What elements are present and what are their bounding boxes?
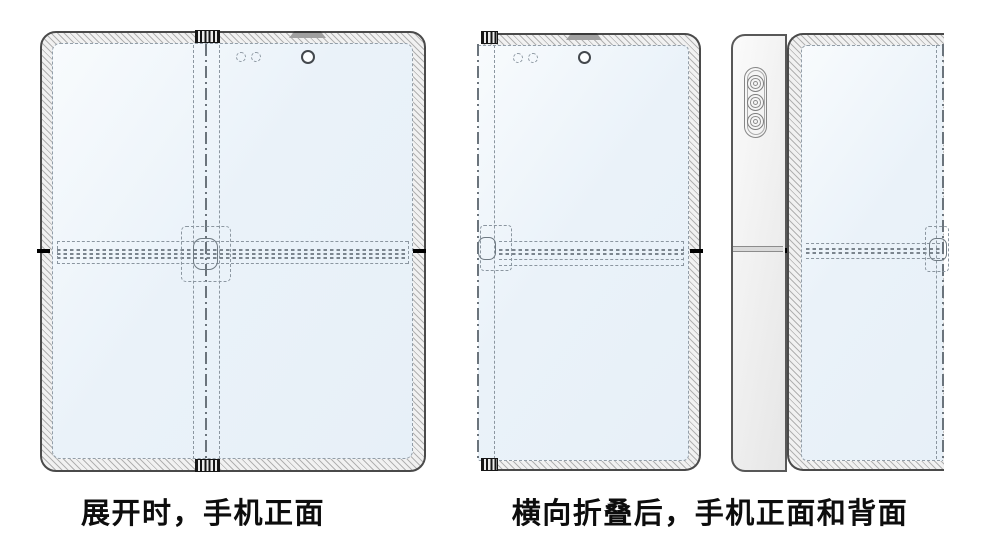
unfolded-screen	[52, 43, 413, 459]
lens-dot	[753, 81, 758, 86]
earpiece-notch	[289, 31, 326, 38]
top-speaker-grille	[195, 30, 220, 43]
earpiece-notch	[566, 33, 602, 40]
rear-camera-lens	[747, 75, 764, 92]
patent-figure-foldable-phone: 展开时，手机正面 横向折叠后，手机正面和背面	[0, 0, 1000, 550]
section-line-tick	[413, 249, 426, 253]
hinge-detail-core	[193, 238, 218, 270]
front-camera	[301, 50, 315, 64]
horizontal-band-line	[806, 252, 940, 254]
lens-ring	[750, 78, 761, 89]
hinge-seam	[733, 246, 783, 252]
horizontal-band-line	[499, 253, 684, 255]
sensor-dashed-circle	[236, 52, 246, 62]
horizontal-band-cap	[408, 241, 409, 264]
section-line-tick	[690, 249, 703, 253]
horizontal-band-line	[499, 259, 684, 260]
horizontal-band-line	[57, 257, 408, 259]
lens-ring	[750, 97, 761, 108]
lens-ring	[750, 116, 761, 127]
sensor-dashed-circle	[528, 53, 538, 63]
section-line-tick	[37, 249, 50, 253]
horizontal-band-cap	[683, 241, 684, 266]
hinge-detail-core-partial	[478, 237, 496, 260]
horizontal-band-line	[57, 253, 408, 255]
rear-camera-lens	[747, 94, 764, 111]
horizontal-band-line	[57, 241, 408, 242]
lens-dot	[753, 119, 758, 124]
bottom-speaker-grille	[481, 458, 498, 471]
lens-dot	[753, 100, 758, 105]
horizontal-band-line	[57, 249, 408, 251]
front-camera	[578, 51, 591, 64]
caption-unfolded-front: 展开时，手机正面	[58, 490, 348, 532]
horizontal-band-line	[806, 258, 940, 259]
hinge-detail-core-partial	[929, 238, 947, 261]
horizontal-band-cap	[57, 241, 58, 264]
horizontal-band-line	[499, 241, 684, 242]
sensor-dashed-circle	[251, 52, 261, 62]
top-speaker-grille	[481, 31, 498, 44]
horizontal-band-line	[806, 243, 940, 244]
sensor-dashed-circle	[513, 53, 523, 63]
horizontal-band-line	[806, 248, 940, 250]
caption-folded-front-and-back: 横向折叠后，手机正面和背面	[468, 490, 952, 532]
rear-camera-lens	[747, 113, 764, 130]
horizontal-band-line	[499, 249, 684, 251]
bottom-speaker-grille	[195, 459, 220, 472]
horizontal-band-line	[499, 265, 684, 266]
horizontal-band-line	[57, 263, 408, 264]
